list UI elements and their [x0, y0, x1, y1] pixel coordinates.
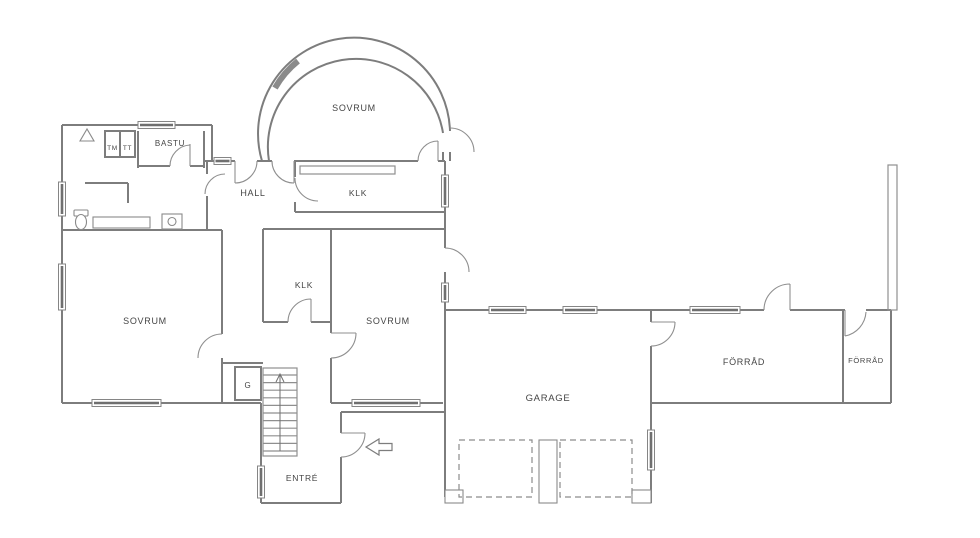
garage-forrad-door	[651, 322, 675, 346]
garage-bay-left	[459, 440, 532, 497]
sovrum-left-door	[198, 334, 222, 358]
room-label-sovrum-middle: SOVRUM	[366, 316, 410, 326]
window-garage-north-1	[489, 307, 526, 314]
forrad-exterior-door	[764, 284, 790, 310]
hall-arch-door-right	[272, 161, 294, 183]
floorplan-page: SOVRUM BASTU TM TT HALL KLK KLK SOVRUM S…	[0, 0, 980, 538]
window-klk-east	[442, 175, 449, 207]
room-label-tt: TT	[123, 145, 132, 152]
room-label-klk-inner: KLK	[295, 280, 313, 290]
room-label-sovrum-left: SOVRUM	[123, 316, 167, 326]
sovrum-middle-door	[331, 333, 356, 358]
room-label-sovrum-arch: SOVRUM	[332, 103, 376, 113]
room-label-forrad-small: FÖRRÅD	[848, 356, 884, 365]
toilet	[74, 210, 88, 230]
room-label-tm: TM	[107, 145, 118, 152]
arch-exterior-door	[450, 128, 474, 152]
klk-inner-door	[288, 299, 311, 322]
room-label-forrad-large: FÖRRÅD	[723, 357, 765, 367]
arch-outer-wall	[258, 38, 450, 161]
garage-front-pier-right	[632, 490, 651, 503]
window-sovrum-middle-south	[352, 400, 420, 407]
room-label-klk-upper: KLK	[349, 188, 367, 198]
entrance-arrow-icon	[366, 439, 392, 455]
staircase	[263, 368, 297, 456]
windows	[59, 61, 741, 498]
window-bathroom-west	[59, 182, 66, 216]
window-sovrum-middle-east	[442, 283, 449, 302]
window-sovrum-left-west	[59, 264, 66, 310]
garage-center-pillar	[539, 440, 557, 503]
window-bastu-north	[138, 122, 175, 129]
freestanding-wall	[888, 165, 897, 310]
window-garage-east	[648, 430, 655, 470]
floorplan-drawing: SOVRUM BASTU TM TT HALL KLK KLK SOVRUM S…	[0, 0, 980, 538]
hall-bathroom-door	[205, 174, 225, 194]
doors	[170, 128, 866, 457]
hall-arch-door-left	[235, 161, 257, 183]
room-label-garage: GARAGE	[526, 393, 571, 404]
sink	[162, 214, 182, 229]
room-label-entre: ENTRÉ	[286, 473, 318, 483]
forrad-small-door	[845, 310, 866, 336]
wardrobe-shelf	[300, 166, 395, 174]
window-entre-west	[258, 466, 265, 498]
room-label-hall: HALL	[240, 188, 265, 198]
window-hall-north	[214, 158, 231, 165]
garage-bay-right	[560, 440, 632, 497]
window-sovrum-left-south	[92, 400, 161, 407]
shower-symbol	[80, 129, 94, 141]
hall-klk-door	[295, 178, 318, 201]
bathroom-bench	[93, 217, 150, 228]
entrance-door	[341, 433, 365, 457]
room-label-bastu: BASTU	[155, 139, 185, 148]
back-yard-door	[445, 248, 469, 272]
window-garage-north-2	[563, 307, 597, 314]
arch-klk-door	[418, 141, 438, 161]
window-forrad-north	[690, 307, 740, 314]
exterior-walls	[62, 38, 897, 503]
room-label-garderob: G	[245, 381, 252, 390]
